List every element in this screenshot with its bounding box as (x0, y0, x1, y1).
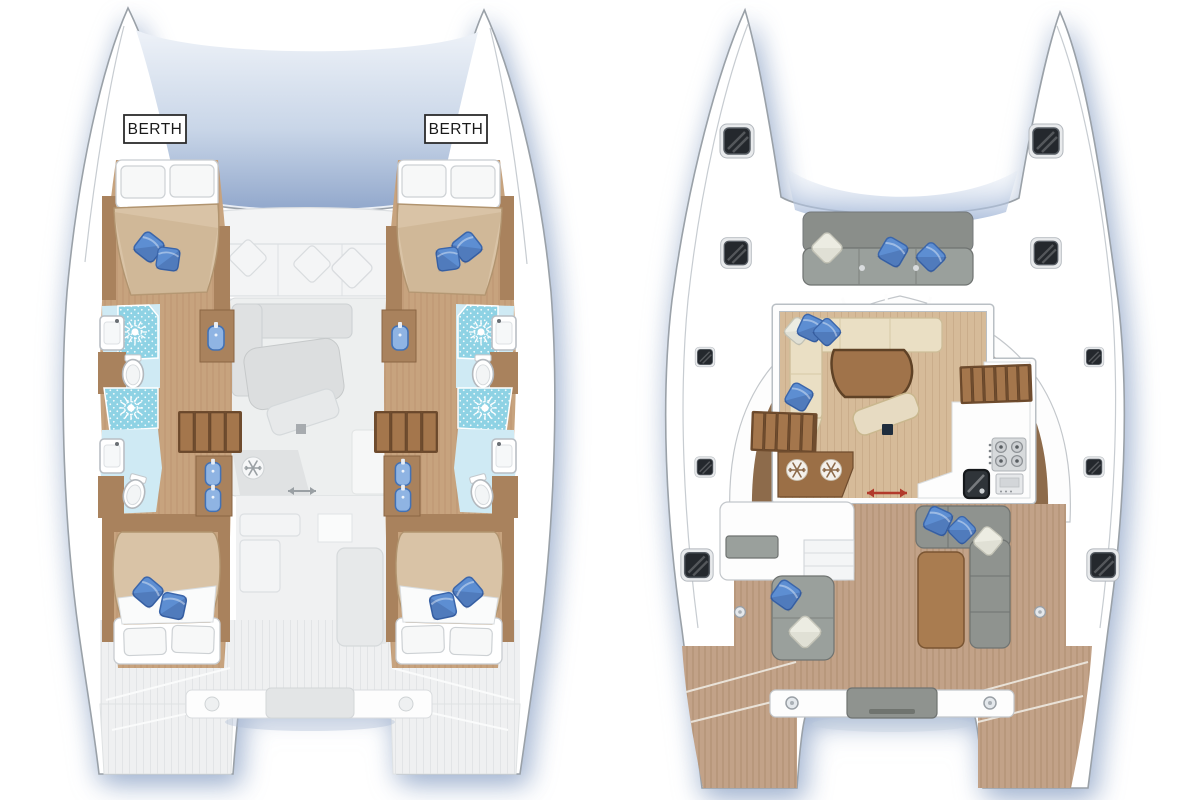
deck-hatch-icon (1087, 549, 1119, 581)
deck-hatch-icon (681, 549, 713, 581)
deck-hatch-icon (1031, 238, 1062, 269)
deck-hatch-icon (695, 347, 715, 367)
stairs-to-port-hull (178, 411, 242, 453)
saloon-table (832, 350, 913, 397)
sink-icon (964, 470, 989, 498)
deck-hatch-icon (1029, 124, 1063, 158)
deck-hatch-icon (720, 124, 754, 158)
deck-hatch-icon (721, 238, 752, 269)
sink-icon (100, 316, 124, 350)
port-cockpit-module (720, 502, 854, 580)
forward-cockpit-seating (803, 212, 973, 285)
port-aft-cabin-bed (102, 514, 230, 664)
starboard-hull-interior-mirrored (374, 160, 518, 668)
ghost-saloon (228, 298, 396, 496)
deck-fitting (735, 607, 746, 618)
deck-hatch-icon (1084, 457, 1104, 477)
table-pedestal (882, 424, 893, 435)
cockpit (682, 502, 1092, 788)
stairs-to-port-hull (750, 411, 817, 453)
port-mid-shower (104, 388, 158, 431)
berth-label-port: BERTH (124, 115, 186, 143)
berth-label-port-text: BERTH (128, 121, 183, 138)
berth-label-starboard-text: BERTH (429, 121, 484, 138)
ghost-fridge-icon (242, 457, 264, 479)
port-hull-interior (98, 160, 242, 668)
hull-deck-plan: BERTH BERTH (0, 0, 600, 800)
port-cockpit-lounger (769, 576, 834, 660)
main-deck-plan (600, 0, 1200, 800)
deck-hatch-icon (695, 457, 715, 477)
port-aft-bathroom (98, 429, 162, 518)
cockpit-table (918, 552, 964, 648)
catamaran-layout-page: BERTH BERTH (0, 0, 1200, 800)
blue-pillow-icon (156, 247, 181, 272)
ghost-aft-bench (186, 688, 432, 718)
berth-label-starboard: BERTH (425, 115, 487, 143)
port-forward-bathroom (98, 304, 160, 394)
fridge-counter (778, 452, 853, 497)
sink-icon (100, 439, 124, 473)
deck-fitting (1035, 607, 1046, 618)
stairs-to-starboard-hull (959, 364, 1032, 404)
oven-icon (996, 474, 1023, 494)
deck-hatch-icon (1084, 347, 1104, 367)
blue-pillow-icon (159, 592, 187, 620)
toilet-icon (123, 355, 144, 389)
